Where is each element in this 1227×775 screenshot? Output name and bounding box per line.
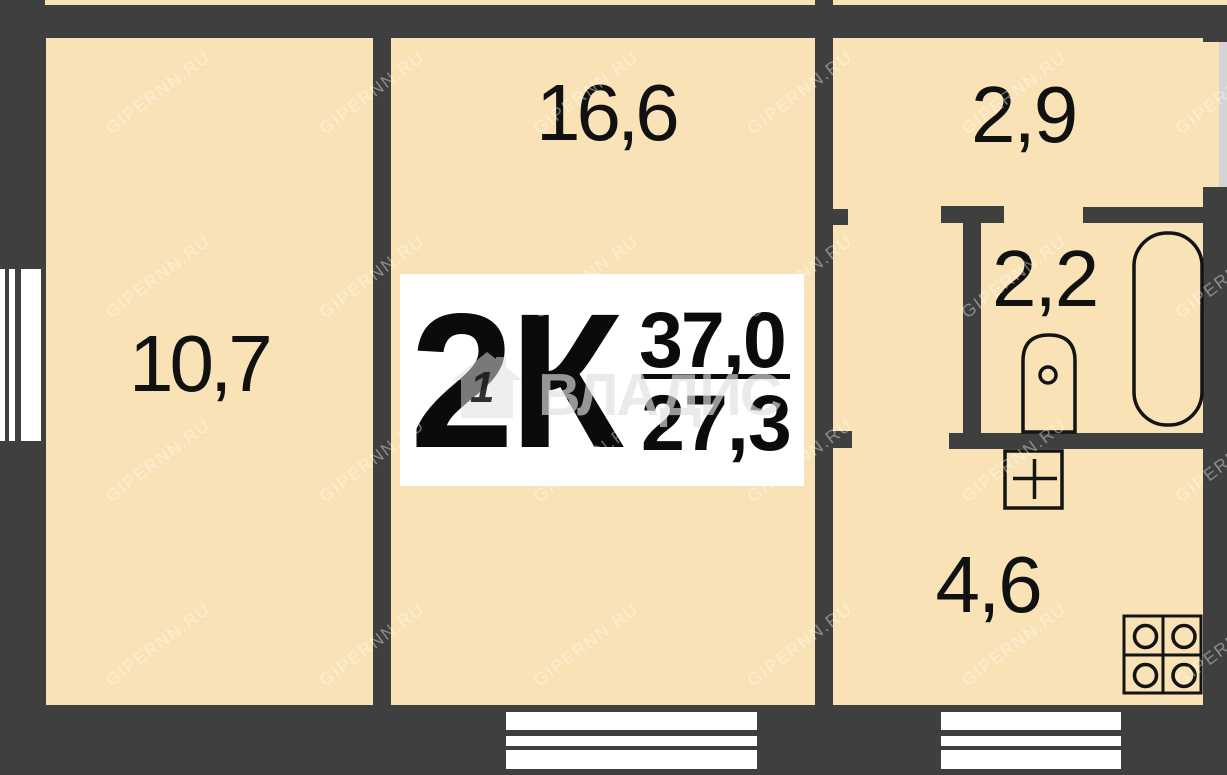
svg-text:1: 1 [470, 363, 494, 412]
